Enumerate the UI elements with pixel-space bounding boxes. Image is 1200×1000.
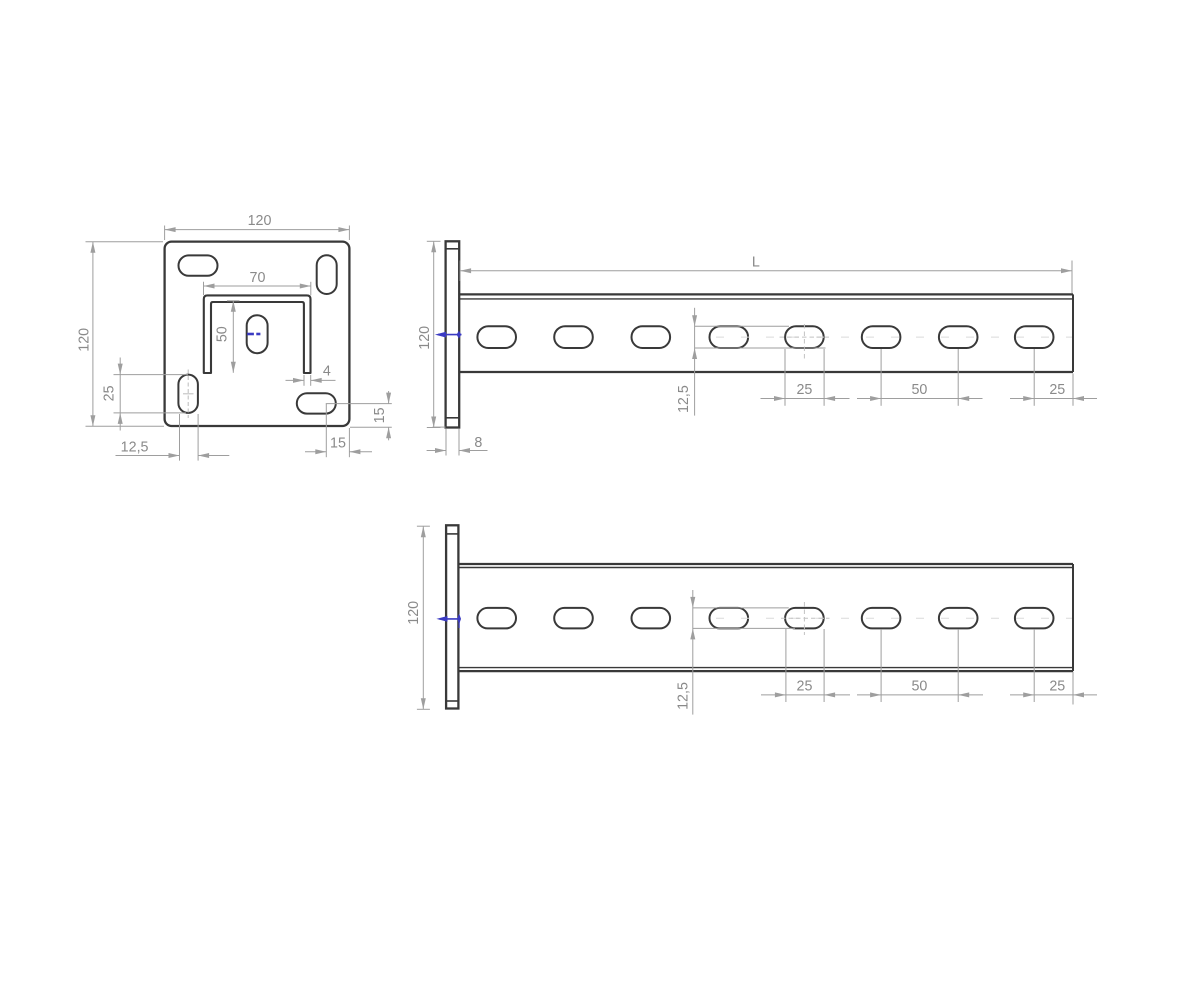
svg-text:25: 25 <box>101 385 117 401</box>
svg-text:70: 70 <box>250 270 266 286</box>
svg-text:12,5: 12,5 <box>121 439 149 455</box>
svg-text:50: 50 <box>911 679 927 695</box>
svg-text:25: 25 <box>797 679 813 695</box>
svg-text:50: 50 <box>215 326 231 342</box>
svg-text:12,5: 12,5 <box>676 385 692 413</box>
svg-text:50: 50 <box>911 382 927 398</box>
svg-text:25: 25 <box>1049 382 1065 398</box>
svg-text:12,5: 12,5 <box>676 682 692 710</box>
svg-text:25: 25 <box>796 382 812 398</box>
svg-text:15: 15 <box>330 436 346 452</box>
svg-text:120: 120 <box>248 213 272 229</box>
svg-text:8: 8 <box>474 435 482 451</box>
svg-text:25: 25 <box>1049 679 1065 695</box>
svg-text:L: L <box>752 255 760 271</box>
svg-text:120: 120 <box>76 328 92 352</box>
svg-text:120: 120 <box>417 326 433 350</box>
svg-text:120: 120 <box>406 601 422 625</box>
svg-text:4: 4 <box>323 364 331 380</box>
svg-text:15: 15 <box>372 407 388 423</box>
